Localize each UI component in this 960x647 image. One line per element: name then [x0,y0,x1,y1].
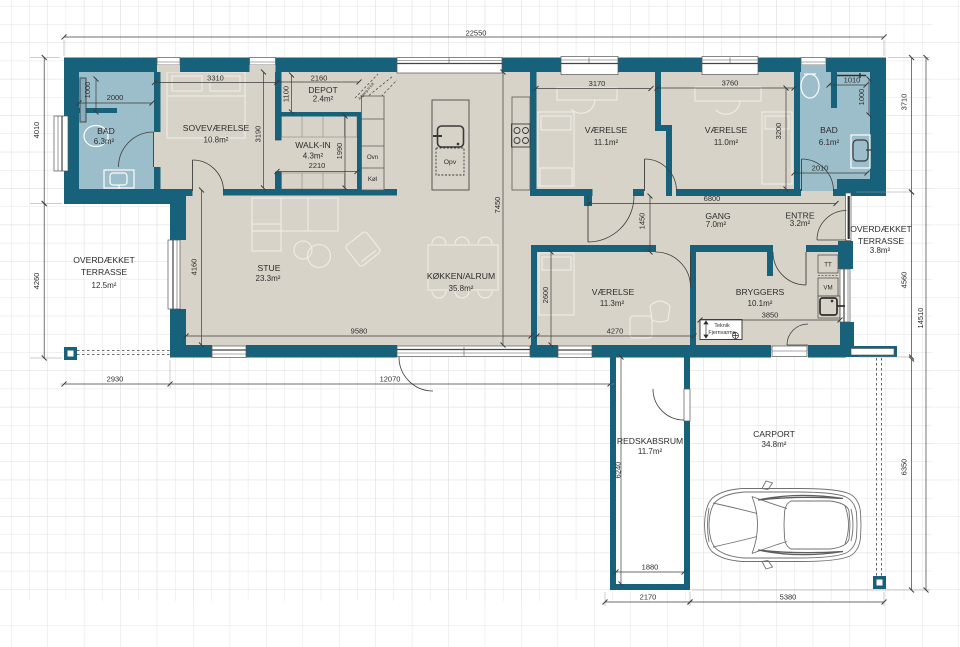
svg-text:4160: 4160 [190,259,199,276]
svg-text:Køl: Køl [368,176,377,183]
svg-text:4260: 4260 [32,273,41,290]
svg-text:4.3m²: 4.3m² [303,152,324,161]
svg-text:REDSKABSRUM: REDSKABSRUM [617,436,683,446]
svg-text:2000: 2000 [107,93,124,102]
svg-text:KØKKEN/ALRUM: KØKKEN/ALRUM [427,271,495,281]
svg-text:6240: 6240 [614,462,623,479]
svg-text:5380: 5380 [780,593,797,602]
svg-text:VÆRELSE: VÆRELSE [585,125,628,135]
svg-text:10.1m²: 10.1m² [748,299,773,308]
svg-text:1880: 1880 [642,563,659,572]
svg-text:23.3m²: 23.3m² [256,274,281,283]
svg-text:VM: VM [823,285,832,292]
svg-text:6.1m²: 6.1m² [819,138,840,147]
svg-text:2010: 2010 [812,164,829,173]
svg-text:Opv: Opv [444,159,457,166]
svg-text:OVERDÆKKET: OVERDÆKKET [850,224,912,234]
svg-text:14510: 14510 [916,308,925,329]
svg-text:2170: 2170 [640,593,657,602]
svg-text:SOVEVÆRELSE: SOVEVÆRELSE [183,123,250,133]
svg-text:BAD: BAD [97,126,115,136]
svg-text:9580: 9580 [351,327,368,336]
svg-text:2210: 2210 [309,161,326,170]
svg-text:3850: 3850 [762,311,779,320]
svg-text:DEPOT: DEPOT [308,85,338,95]
svg-text:3170: 3170 [589,79,606,88]
svg-text:4560: 4560 [900,272,909,289]
svg-text:3.8m²: 3.8m² [870,246,891,255]
svg-text:1000: 1000 [857,89,866,106]
svg-text:11.3m²: 11.3m² [600,299,625,308]
svg-text:Fjernvarme: Fjernvarme [708,330,735,336]
svg-text:12.5m²: 12.5m² [92,281,117,290]
svg-text:BAD: BAD [820,125,838,135]
svg-text:11.1m²: 11.1m² [594,138,619,147]
svg-text:4010: 4010 [32,122,41,139]
svg-text:11.0m²: 11.0m² [714,138,739,147]
svg-text:6.3m²: 6.3m² [94,137,115,146]
svg-text:2160: 2160 [311,74,328,83]
svg-text:Teknik: Teknik [714,323,730,329]
svg-text:1990: 1990 [335,143,344,160]
svg-text:22550: 22550 [466,29,487,38]
svg-text:TERRASSE: TERRASSE [858,236,905,246]
svg-text:BRYGGERS: BRYGGERS [736,287,785,297]
svg-text:1100: 1100 [282,86,291,102]
svg-text:3.2m²: 3.2m² [790,219,811,228]
svg-text:3310: 3310 [207,74,224,83]
svg-text:34.8m²: 34.8m² [762,440,787,449]
svg-text:WALK-IN: WALK-IN [295,140,331,150]
svg-text:CARPORT: CARPORT [753,429,796,439]
svg-text:Ovn: Ovn [367,154,379,161]
svg-text:7.0m²: 7.0m² [706,220,727,229]
svg-text:3760: 3760 [722,79,739,88]
svg-text:4270: 4270 [607,327,624,336]
svg-text:3710: 3710 [900,94,909,111]
svg-text:TT: TT [824,262,832,269]
svg-text:11.7m²: 11.7m² [638,447,663,456]
svg-text:1450: 1450 [638,213,647,230]
svg-text:TERRASSE: TERRASSE [81,267,128,277]
svg-text:12070: 12070 [380,375,401,384]
svg-text:6350: 6350 [900,459,909,476]
svg-text:10.8m²: 10.8m² [204,136,229,145]
svg-text:1000: 1000 [83,82,92,99]
svg-text:OVERDÆKKET: OVERDÆKKET [73,255,135,265]
svg-text:3200: 3200 [774,123,783,140]
svg-text:3190: 3190 [254,126,263,143]
svg-text:6800: 6800 [704,194,721,203]
svg-text:2930: 2930 [107,375,124,384]
svg-text:VÆRELSE: VÆRELSE [705,125,748,135]
svg-text:2600: 2600 [541,287,550,304]
svg-text:VÆRELSE: VÆRELSE [592,287,635,297]
svg-text:1010: 1010 [844,76,861,85]
svg-text:7450: 7450 [493,197,502,214]
svg-text:STUE: STUE [258,263,281,273]
svg-text:2.4m²: 2.4m² [313,95,334,104]
svg-text:35.8m²: 35.8m² [449,284,474,293]
